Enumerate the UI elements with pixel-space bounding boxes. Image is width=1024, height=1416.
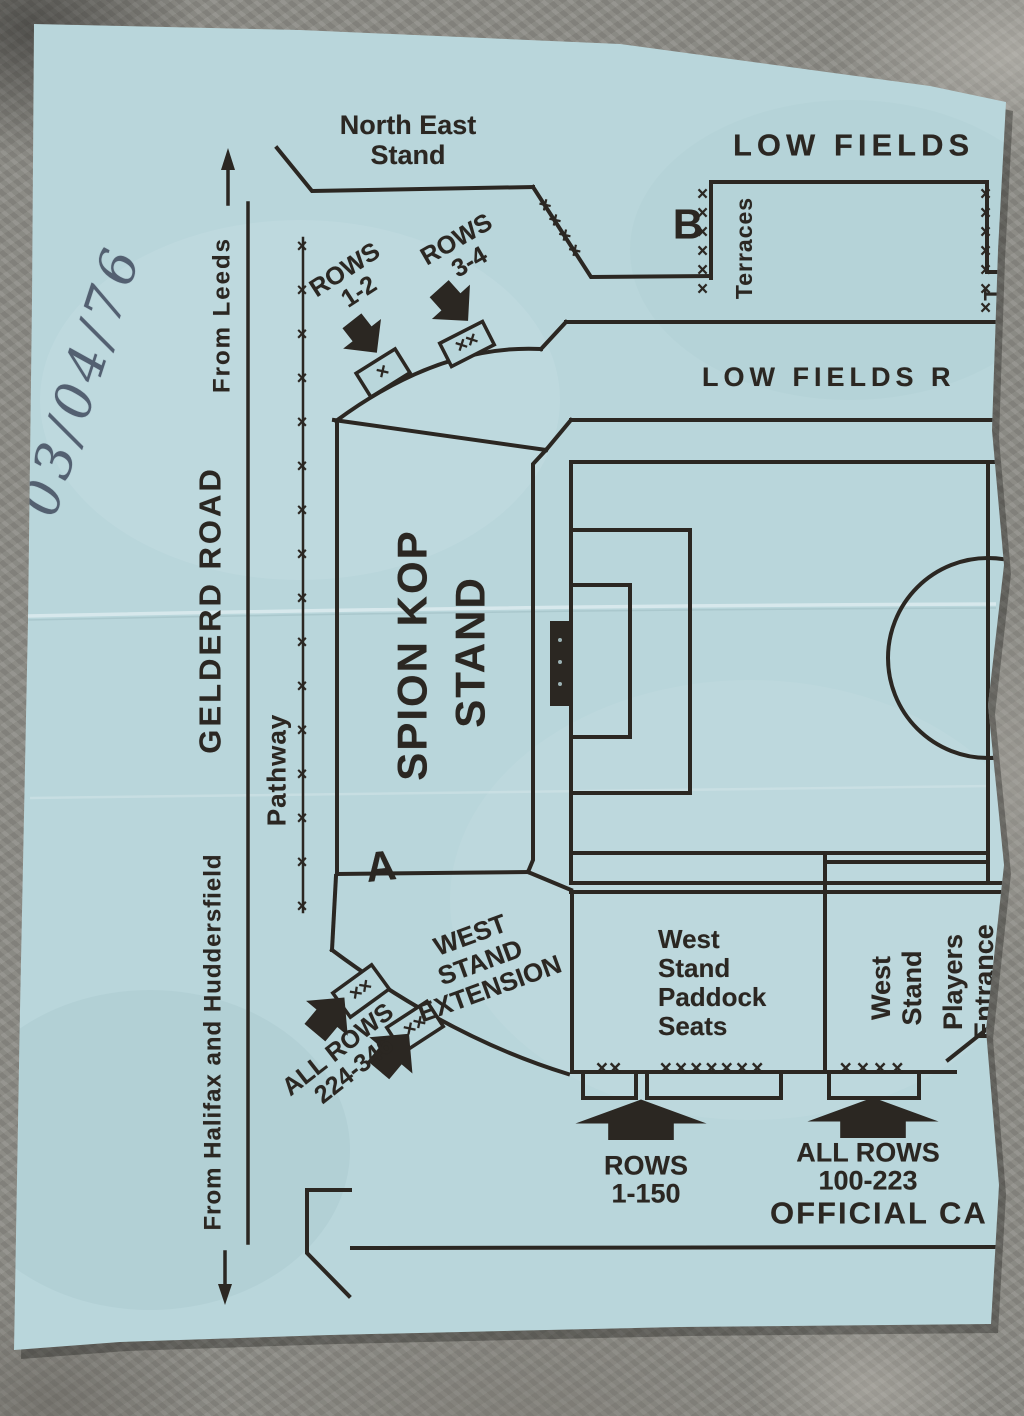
kop-gate2-marks: ××: [452, 328, 483, 359]
spion-kop-label-line1: SPION KOP: [388, 529, 435, 780]
from-halifax-label: From Halifax and Huddersfield: [201, 853, 228, 1230]
north-east-stand-label: North East Stand: [340, 110, 477, 170]
official-car-park-label: OFFICIAL CA: [770, 1197, 988, 1232]
section-a-label: A: [363, 841, 398, 891]
low-fields-road-label: LOW FIELDS R: [702, 362, 955, 392]
kop-rows-3-4-label: ROWS 3-4: [416, 209, 510, 293]
pathway-label: Pathway: [262, 714, 291, 827]
paddock-turnstile-small-marks: ××: [596, 1057, 623, 1081]
west-stand-paddock-label: West Stand Paddock Seats: [658, 925, 766, 1041]
paddock-rows-label: ROWS 1-150: [604, 1152, 688, 1209]
gelderd-road-label: GELDERD ROAD: [194, 466, 229, 753]
photo-of-stadium-map: North East Stand LOW FIELDS LOW FIELDS R…: [0, 0, 1024, 1416]
ne-stand-fence-marks: ××××: [532, 195, 589, 267]
map-labels: North East Stand LOW FIELDS LOW FIELDS R…: [0, 0, 1024, 1416]
terraces-label: Terraces: [732, 197, 758, 299]
b-box-left-fence-marks: ××××××: [691, 184, 713, 298]
low-fields-top-label: LOW FIELDS: [733, 129, 974, 164]
ext-gate1-marks: ××: [345, 974, 377, 1006]
spion-kop-label-line2: STAND: [446, 576, 493, 728]
handwritten-date: 03/04/76: [11, 237, 153, 523]
from-leeds-label: From Leeds: [210, 237, 237, 393]
kop-rows-1-2-label: ROWS 1-2: [305, 238, 399, 324]
west-stand-rows-label: ALL ROWS 100-223: [796, 1139, 940, 1196]
west-stand-extension-label: WEST STAND EXTENSION: [395, 896, 566, 1028]
b-box-right-fence-marks: ×××××××: [974, 184, 996, 317]
kop-gate1-marks: ×: [372, 359, 394, 384]
paddock-turnstile-large-marks: ×××××××: [660, 1057, 767, 1081]
west-ext-rows-label: ALL ROWS 224-346: [277, 998, 414, 1121]
west-stand-turnstile-marks: ××××: [839, 1057, 908, 1081]
pathway-fence-marks: ××××××××××××××××: [291, 236, 312, 940]
west-stand-label: West Stand: [866, 950, 928, 1025]
